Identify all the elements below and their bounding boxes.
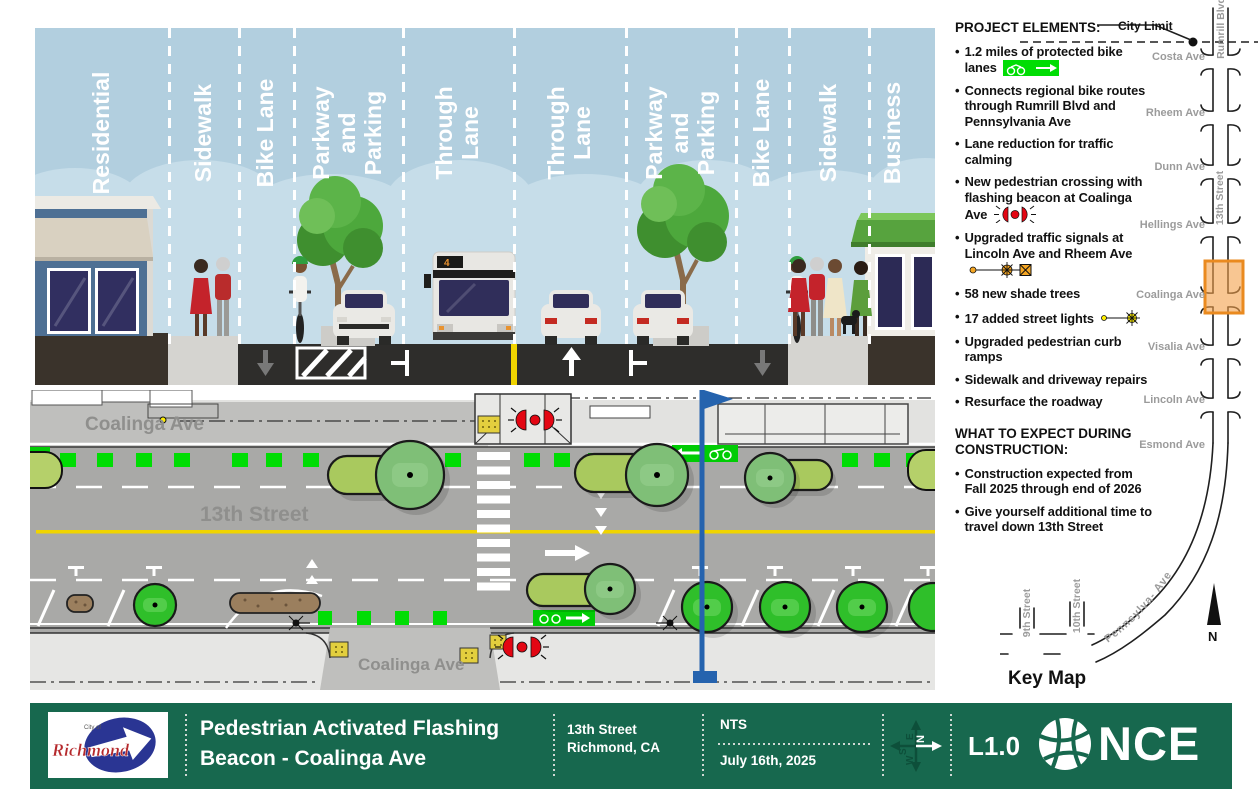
cross-section-diagram: 4 bbox=[35, 28, 935, 385]
project-notes-panel: PROJECT ELEMENTS: • 1.2 miles of protect… bbox=[955, 20, 1157, 542]
nce-logo: NCE bbox=[1038, 717, 1200, 771]
parked-car-left bbox=[333, 290, 395, 345]
street-light-icon bbox=[1100, 309, 1142, 327]
bullet: • bbox=[955, 44, 960, 76]
title-block-divider bbox=[553, 714, 555, 778]
traffic-signal-icon bbox=[968, 261, 1034, 279]
project-area-highlight bbox=[1205, 261, 1243, 313]
north-arrow bbox=[1207, 583, 1221, 625]
list-item: • Sidewalk and driveway repairs bbox=[955, 372, 1157, 388]
plan-sheet: 4 bbox=[0, 0, 1260, 806]
construction-heading: WHAT TO EXPECT DURING CONSTRUCTION: bbox=[955, 426, 1157, 458]
logo-small-text: City of bbox=[84, 725, 101, 731]
compass-rose: E S W N bbox=[888, 713, 946, 779]
compass-south: S bbox=[898, 748, 909, 755]
coalinga-ave-bottom-label: Coalinga Ave bbox=[358, 655, 464, 674]
flashing-beacon-icon bbox=[994, 205, 1036, 223]
key-map-heading: Key Map bbox=[1008, 668, 1086, 690]
list-item: • Connects regional bike routes through … bbox=[955, 83, 1157, 130]
title-block-divider bbox=[702, 714, 704, 778]
richmond-logo-art: City of Richmond bbox=[48, 712, 168, 778]
list-item: • New pedestrian crossing with flashing … bbox=[955, 174, 1157, 223]
scale-label: NTS bbox=[720, 717, 747, 732]
title-block-divider bbox=[882, 714, 884, 778]
list-item: • 1.2 miles of protected bike lanes bbox=[955, 44, 1157, 76]
protected-bike-lane-icon bbox=[1003, 60, 1059, 76]
date-label: July 16th, 2025 bbox=[720, 753, 816, 768]
sheet-number: L1.0 bbox=[968, 731, 1020, 762]
list-item: • 58 new shade trees bbox=[955, 286, 1157, 302]
list-item: • Construction expected from Fall 2025 t… bbox=[955, 466, 1157, 497]
richmond-logo: City of Richmond bbox=[48, 712, 168, 778]
thirteenth-street-label: 13th Street bbox=[200, 503, 309, 526]
north-label: N bbox=[1208, 629, 1217, 644]
scale-date-divider bbox=[718, 743, 870, 745]
compass-north: N bbox=[915, 735, 927, 743]
beacon-assembly-top bbox=[475, 394, 571, 444]
compass-west: W bbox=[905, 755, 916, 765]
project-location: 13th Street Richmond, CA bbox=[567, 721, 660, 757]
title-block-divider bbox=[950, 714, 952, 778]
list-item: • Upgraded traffic signals at Lincoln Av… bbox=[955, 230, 1157, 279]
logo-text: Richmond bbox=[51, 740, 130, 760]
construction-list: • Construction expected from Fall 2025 t… bbox=[955, 466, 1157, 535]
title-block: City of Richmond Pedestrian Activated Fl… bbox=[30, 703, 1232, 789]
bike-box-eastbound bbox=[533, 610, 595, 626]
pennsylvania-ave-label: Pennsylva- Ave bbox=[1102, 569, 1174, 645]
list-item: • Resurface the roadway bbox=[955, 394, 1157, 410]
nce-globe-icon bbox=[1038, 717, 1092, 771]
nce-firm-name: NCE bbox=[1098, 717, 1200, 771]
list-item: • Give yourself additional time to trave… bbox=[955, 504, 1157, 535]
project-title: Pedestrian Activated Flashing Beacon - C… bbox=[200, 714, 499, 774]
title-block-divider bbox=[185, 714, 187, 778]
parked-car-right bbox=[633, 290, 693, 345]
list-item: • 17 added street lights bbox=[955, 309, 1157, 327]
list-item: • Upgraded pedestrian curb ramps bbox=[955, 334, 1157, 365]
coalinga-ave-top-label: Coalinga Ave bbox=[85, 414, 204, 435]
car-through-lane bbox=[541, 290, 601, 345]
project-elements-list: • 1.2 miles of protected bike lanes • Co… bbox=[955, 44, 1157, 410]
plan-view-art: Coalinga Ave 13th Street Coalinga Ave bbox=[30, 390, 935, 690]
project-elements-heading: PROJECT ELEMENTS: bbox=[955, 20, 1157, 36]
plan-view-drawing: Coalinga Ave 13th Street Coalinga Ave bbox=[30, 390, 935, 690]
list-item: • Lane reduction for traffic calming bbox=[955, 136, 1157, 167]
